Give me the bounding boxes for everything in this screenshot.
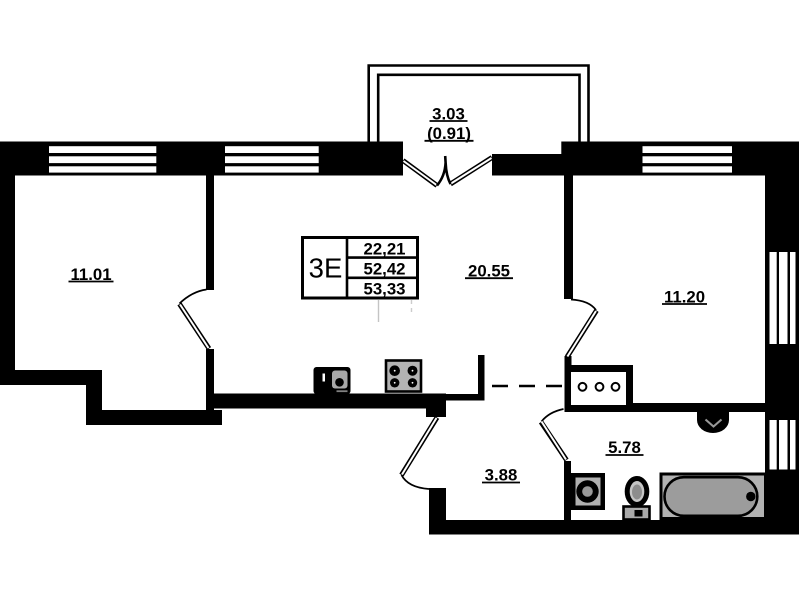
svg-text:22,21: 22,21 [364, 240, 406, 259]
svg-text:53,33: 53,33 [364, 280, 406, 299]
svg-text:3Е: 3Е [309, 253, 343, 284]
svg-text:52,42: 52,42 [364, 260, 406, 279]
